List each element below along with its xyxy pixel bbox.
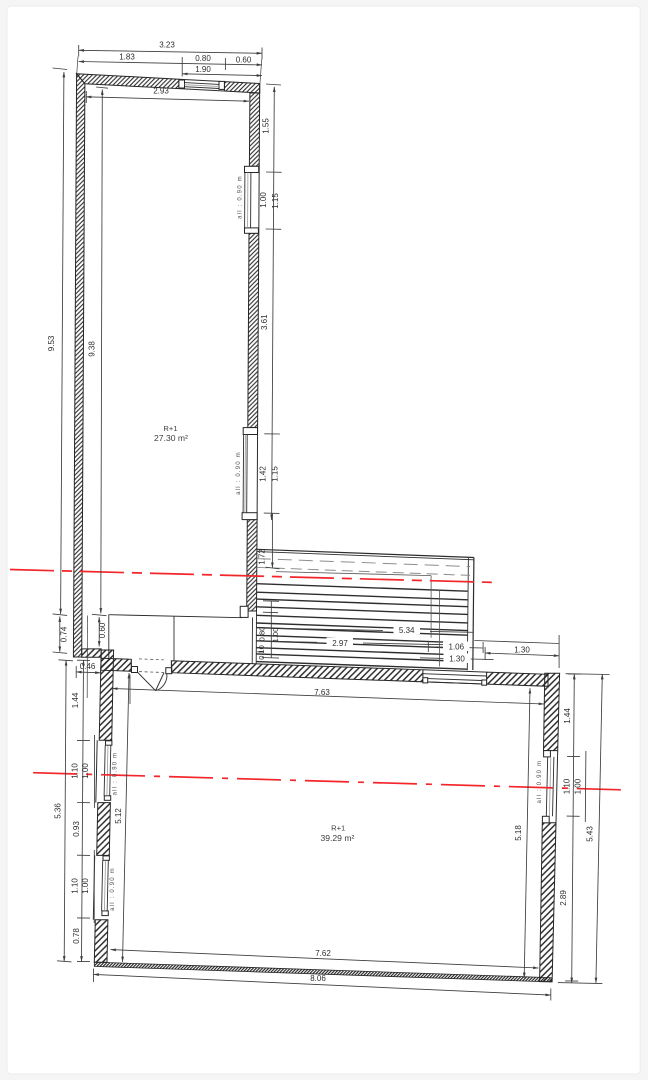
svg-text:9.38: 9.38 (88, 341, 97, 357)
svg-text:1.06: 1.06 (449, 643, 465, 652)
svg-text:1.00: 1.00 (271, 628, 280, 643)
svg-text:0.10: 0.10 (257, 645, 266, 660)
svg-text:0.74: 0.74 (59, 626, 68, 642)
svg-text:1.10: 1.10 (562, 778, 571, 794)
svg-text:1.55: 1.55 (262, 118, 271, 134)
svg-text:all : 0.90 m: all : 0.90 m (236, 451, 242, 495)
svg-text:5.34: 5.34 (399, 626, 415, 635)
svg-text:1.00: 1.00 (573, 778, 582, 794)
svg-text:1.10: 1.10 (70, 763, 79, 779)
svg-text:1.44: 1.44 (563, 708, 572, 724)
svg-text:0.80: 0.80 (258, 627, 267, 642)
svg-text:R+1: R+1 (331, 824, 345, 833)
svg-text:2.93: 2.93 (153, 87, 169, 96)
svg-text:1.00: 1.00 (81, 763, 90, 779)
svg-text:9.53: 9.53 (47, 335, 56, 351)
svg-text:all : 0.90 m: all : 0.90 m (238, 175, 244, 219)
svg-text:1.00: 1.00 (81, 878, 90, 894)
svg-text:1.42: 1.42 (259, 466, 268, 482)
svg-text:3.23: 3.23 (159, 41, 175, 50)
svg-text:1.10: 1.10 (70, 878, 79, 894)
svg-text:1.15: 1.15 (271, 193, 280, 209)
svg-text:3.61: 3.61 (260, 314, 269, 330)
svg-text:2.97: 2.97 (332, 639, 348, 648)
svg-text:5.43: 5.43 (585, 826, 594, 842)
svg-text:7.63: 7.63 (314, 688, 330, 697)
svg-text:all : 0.90 m: all : 0.90 m (537, 760, 543, 804)
svg-text:1.44: 1.44 (71, 692, 80, 708)
svg-text:5.18: 5.18 (514, 825, 523, 841)
svg-text:7.62: 7.62 (315, 949, 331, 958)
svg-text:1.30: 1.30 (514, 646, 530, 655)
svg-text:0.80: 0.80 (195, 54, 211, 63)
svg-text:5.36: 5.36 (54, 803, 63, 819)
svg-text:27.30 m²: 27.30 m² (154, 433, 188, 443)
svg-text:R+1: R+1 (163, 424, 177, 433)
svg-text:0.46: 0.46 (80, 662, 96, 671)
svg-text:1.72: 1.72 (258, 549, 267, 565)
svg-text:0.78: 0.78 (72, 928, 81, 944)
svg-text:8.06: 8.06 (310, 974, 326, 983)
svg-text:1.83: 1.83 (119, 52, 135, 61)
svg-text:all : 0.90 m: all : 0.90 m (113, 752, 119, 796)
svg-text:0.60: 0.60 (236, 55, 252, 64)
svg-text:1.90: 1.90 (195, 65, 211, 74)
svg-text:1.15: 1.15 (271, 466, 280, 482)
svg-text:all : 0.90 m: all : 0.90 m (110, 867, 116, 911)
svg-text:1.30: 1.30 (449, 654, 465, 663)
svg-text:39.29 m²: 39.29 m² (320, 833, 354, 843)
svg-text:2.89: 2.89 (559, 890, 568, 906)
svg-text:1.00: 1.00 (259, 192, 268, 208)
svg-text:0.60: 0.60 (98, 622, 107, 638)
svg-text:5.12: 5.12 (114, 808, 123, 824)
svg-text:0.93: 0.93 (72, 821, 81, 837)
